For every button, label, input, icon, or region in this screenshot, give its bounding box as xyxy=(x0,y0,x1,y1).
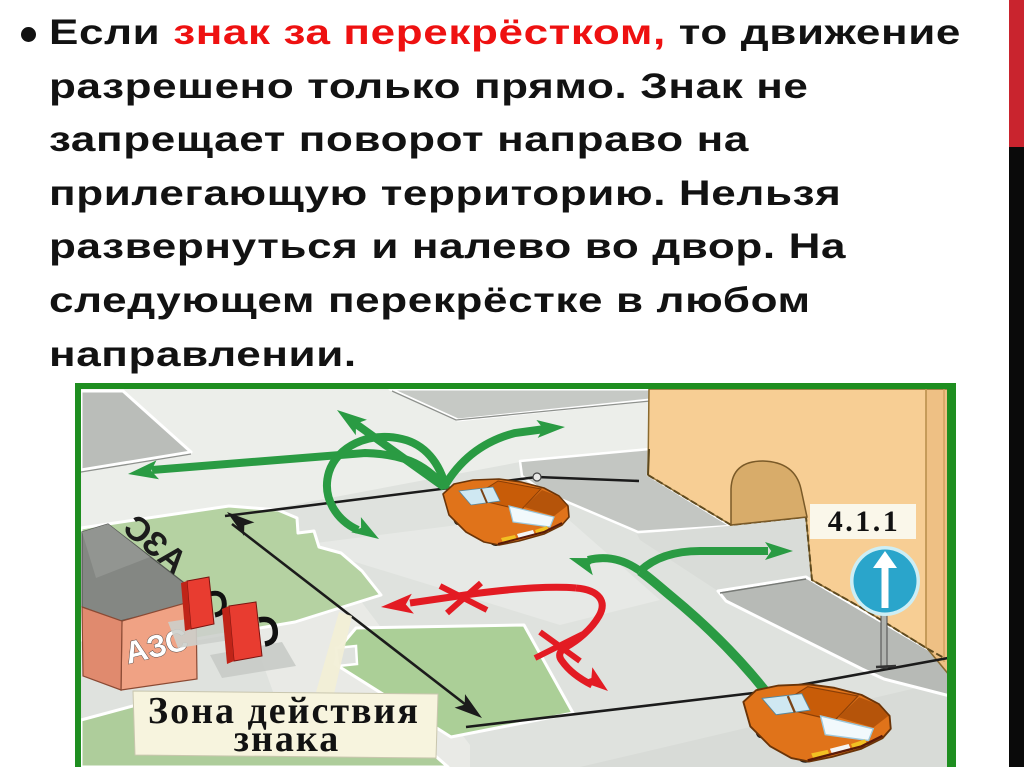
svg-text:4.1.1: 4.1.1 xyxy=(828,505,901,538)
svg-text:знака: знака xyxy=(234,718,340,760)
